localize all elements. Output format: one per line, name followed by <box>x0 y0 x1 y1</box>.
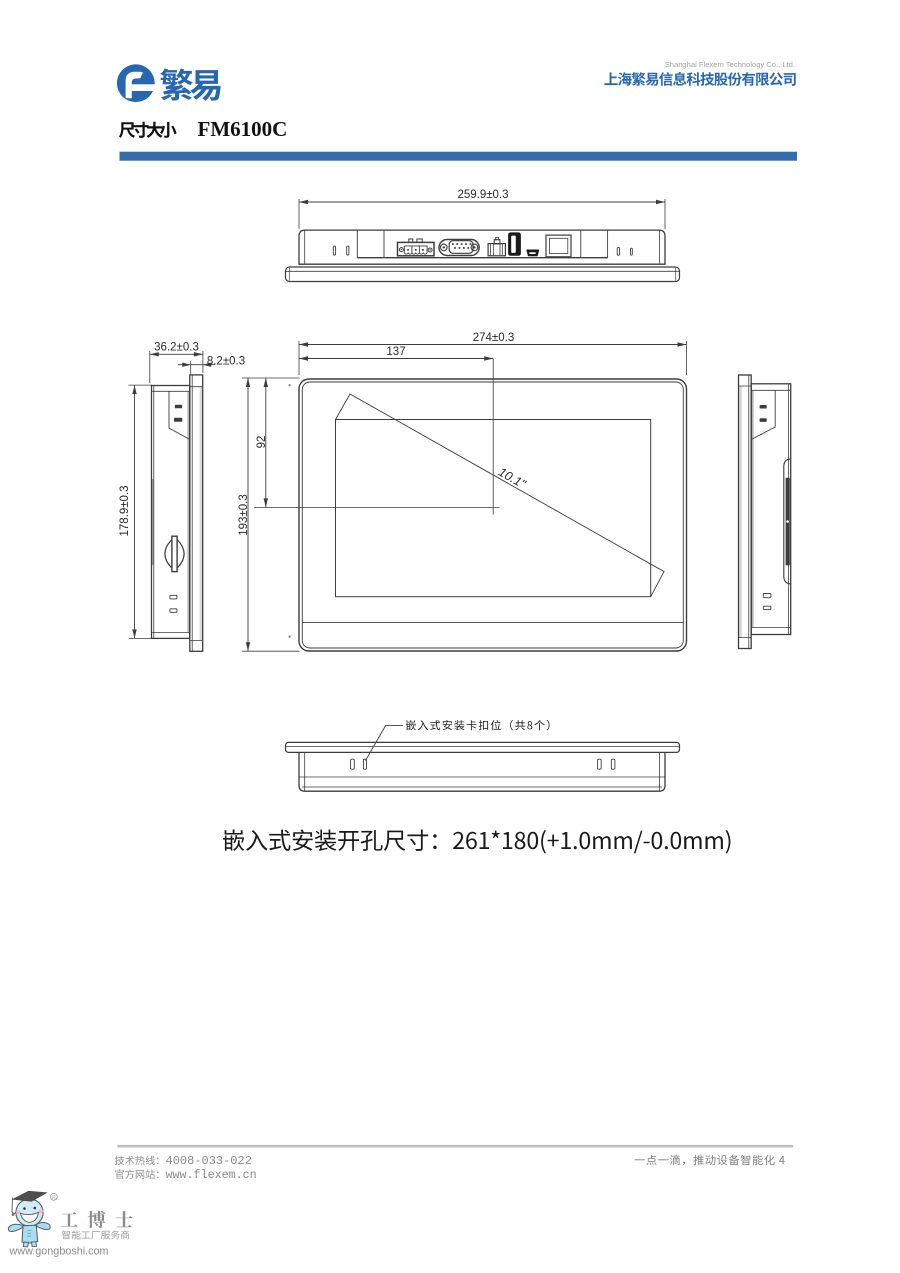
svg-text:92: 92 <box>256 436 268 449</box>
svg-text:4008-033-022: 4008-033-022 <box>166 1154 252 1168</box>
svg-text:8.2±0.3: 8.2±0.3 <box>207 356 245 368</box>
svg-text:36.2±0.3: 36.2±0.3 <box>154 342 199 354</box>
svg-text:www.gongboshi.com: www.gongboshi.com <box>9 1246 109 1258</box>
svg-text:178.9±0.3: 178.9±0.3 <box>119 485 131 536</box>
svg-text:274±0.3: 274±0.3 <box>473 332 515 344</box>
svg-text:R: R <box>52 1195 56 1201</box>
svg-text:259.9±0.3: 259.9±0.3 <box>457 189 508 201</box>
svg-text:www.flexem.cn: www.flexem.cn <box>166 1168 257 1182</box>
svg-text:137: 137 <box>386 346 405 358</box>
svg-text:193±0.3: 193±0.3 <box>238 494 250 536</box>
svg-text:FM6100C: FM6100C <box>198 117 288 141</box>
svg-text:Shanghai Flexem Technology Co.: Shanghai Flexem Technology Co., Ltd. <box>665 60 795 69</box>
